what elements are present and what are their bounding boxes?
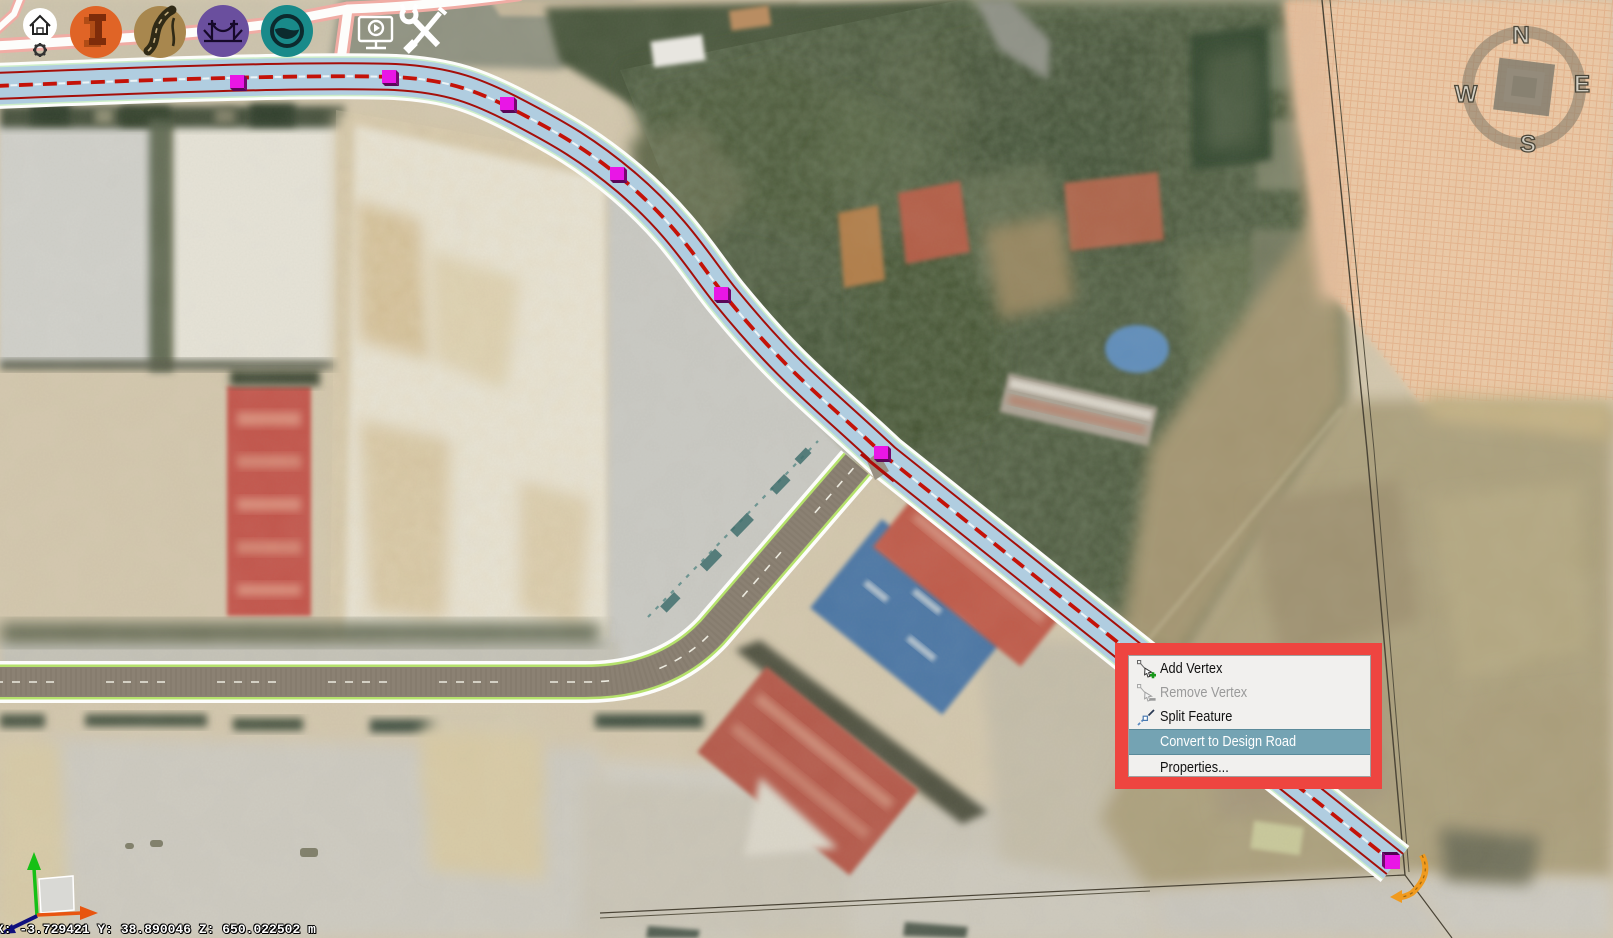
svg-text:W: W bbox=[1455, 81, 1478, 108]
svg-text:N: N bbox=[1512, 22, 1529, 49]
svg-text:E: E bbox=[1574, 71, 1590, 98]
svg-text:S: S bbox=[1520, 131, 1536, 158]
